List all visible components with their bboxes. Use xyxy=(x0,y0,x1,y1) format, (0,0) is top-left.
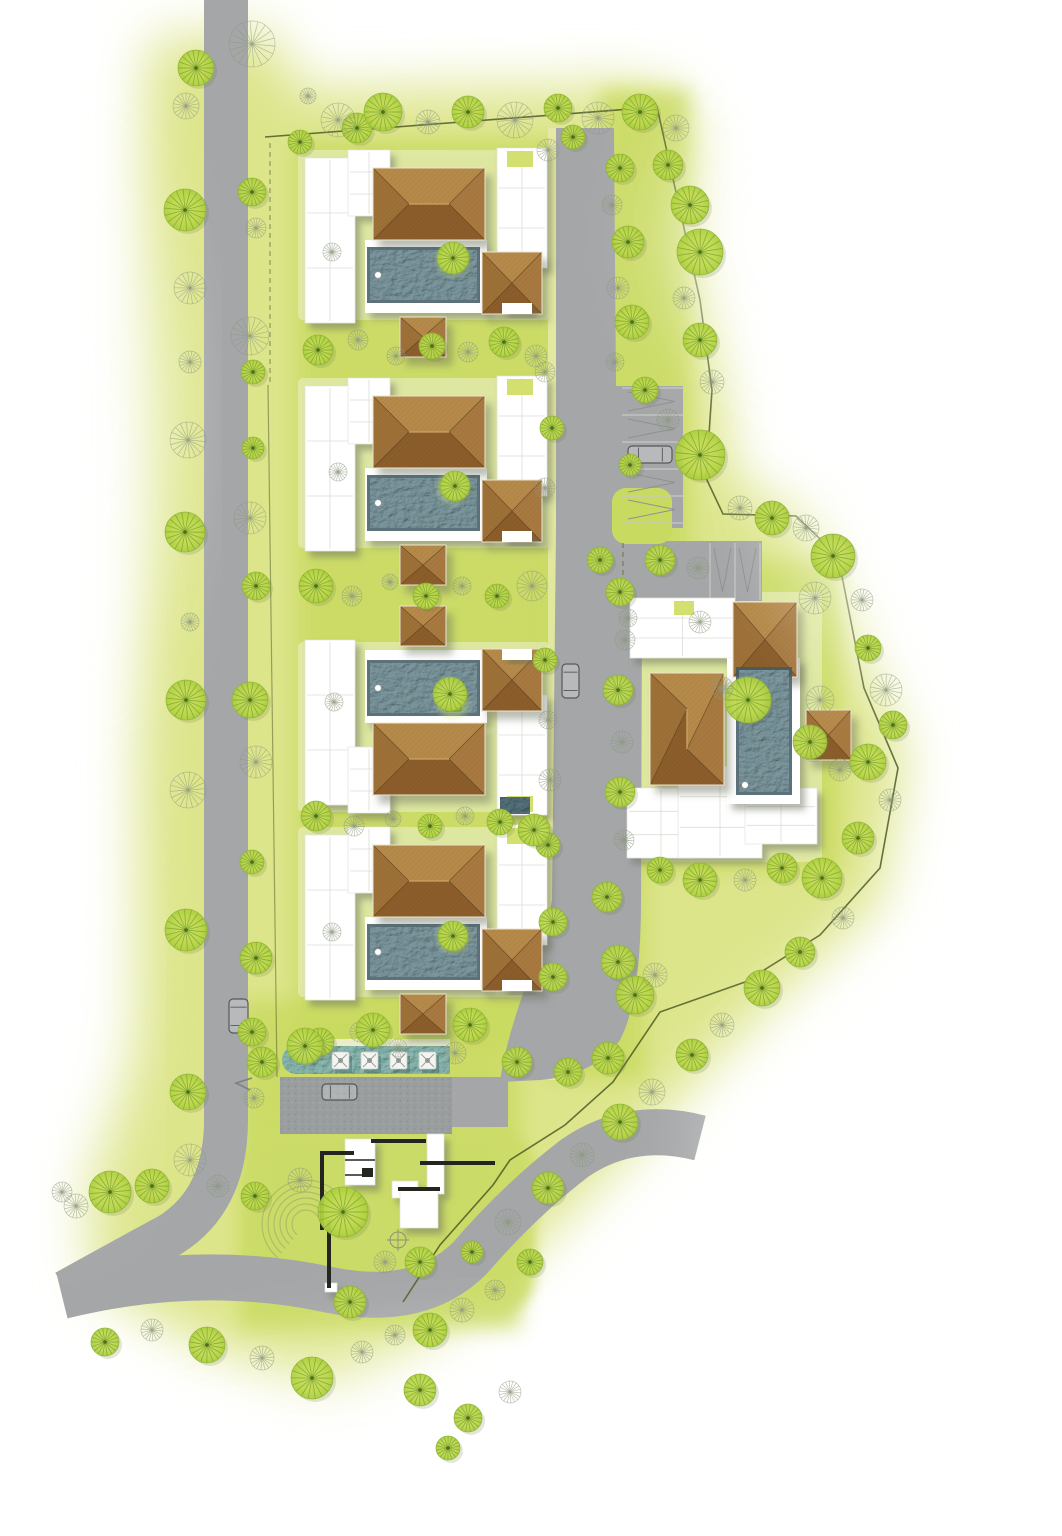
pavilion-roof xyxy=(400,545,446,585)
pavilion-roof xyxy=(733,602,797,677)
entry-plaza-texture xyxy=(280,1077,452,1134)
pavilion-roof xyxy=(400,994,446,1034)
porch xyxy=(502,531,532,542)
site-plan xyxy=(0,0,1062,1536)
hip-roof xyxy=(373,723,485,795)
gatehouse-core xyxy=(362,1168,373,1177)
car-icon xyxy=(562,664,579,698)
pool-ladder xyxy=(375,685,382,692)
hip-roof xyxy=(650,673,724,785)
porch xyxy=(502,649,532,660)
hip-roof xyxy=(373,845,485,917)
pool-ladder xyxy=(375,500,382,507)
hip-roof xyxy=(373,168,485,240)
car-icon xyxy=(322,1084,357,1100)
pavilion-roof xyxy=(400,606,446,646)
fountain-icon xyxy=(361,1052,381,1073)
pool-ladder xyxy=(375,272,382,279)
porch xyxy=(502,980,532,991)
courtyard xyxy=(507,151,533,167)
courtyard xyxy=(507,379,533,395)
pool-ladder xyxy=(375,949,382,956)
hip-roof xyxy=(373,396,485,468)
courtyard xyxy=(674,601,694,615)
glow xyxy=(720,1000,1060,1300)
pool-ladder xyxy=(742,782,749,789)
road-connector xyxy=(448,1077,508,1127)
fountain-icon xyxy=(332,1052,352,1073)
porch xyxy=(502,303,532,314)
fountain-icon xyxy=(419,1052,439,1073)
site-plan-canvas xyxy=(0,0,1062,1536)
